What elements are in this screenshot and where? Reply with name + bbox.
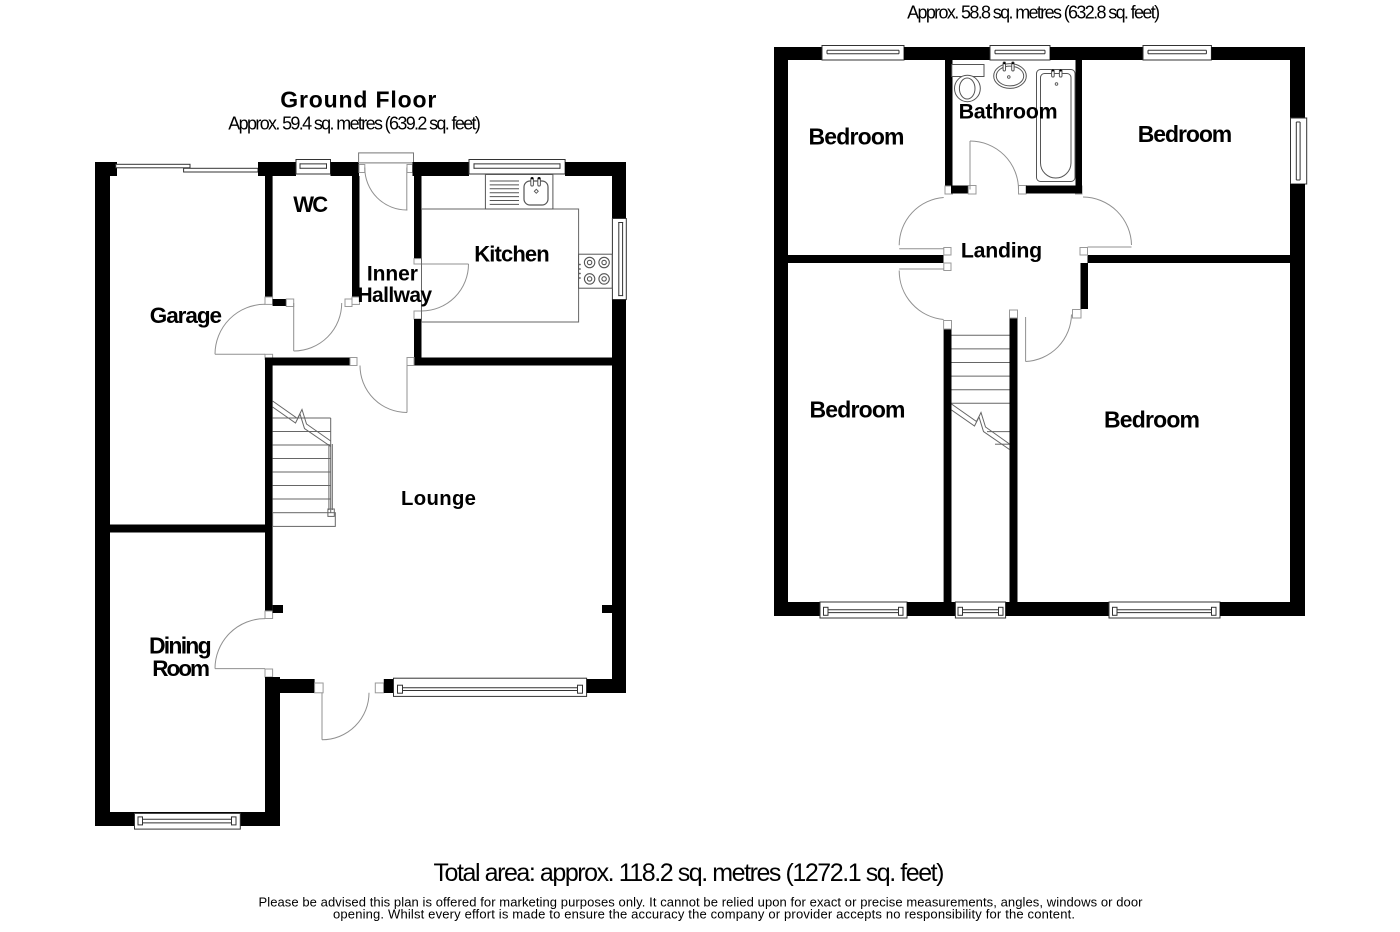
svg-text:Bedroom: Bedroom [1138, 121, 1233, 147]
svg-text:Ground Floor: Ground Floor [280, 87, 436, 113]
svg-text:Bathroom: Bathroom [959, 100, 1058, 124]
svg-text:opening. Whilst every effort i: opening. Whilst every effort is made to … [333, 907, 1075, 922]
svg-text:Hallway: Hallway [358, 284, 433, 307]
svg-text:WC: WC [293, 192, 328, 217]
svg-text:Dining: Dining [149, 633, 212, 659]
svg-text:Bedroom: Bedroom [810, 397, 906, 423]
svg-text:Landing: Landing [961, 238, 1042, 262]
svg-text:Garage: Garage [150, 303, 222, 328]
svg-text:Inner: Inner [367, 262, 418, 285]
svg-text:Bedroom: Bedroom [809, 124, 905, 150]
svg-text:Bedroom: Bedroom [1104, 407, 1200, 433]
svg-text:Kitchen: Kitchen [474, 242, 550, 267]
svg-text:Approx. 58.8 sq. metres (632.8: Approx. 58.8 sq. metres (632.8 sq. feet) [907, 3, 1160, 23]
svg-text:Total area: approx. 118.2 sq.: Total area: approx. 118.2 sq. metres (12… [434, 859, 945, 887]
svg-text:Approx. 59.4 sq. metres (639.2: Approx. 59.4 sq. metres (639.2 sq. feet) [228, 114, 481, 134]
svg-text:Room: Room [152, 656, 210, 681]
svg-text:Lounge: Lounge [401, 488, 476, 510]
